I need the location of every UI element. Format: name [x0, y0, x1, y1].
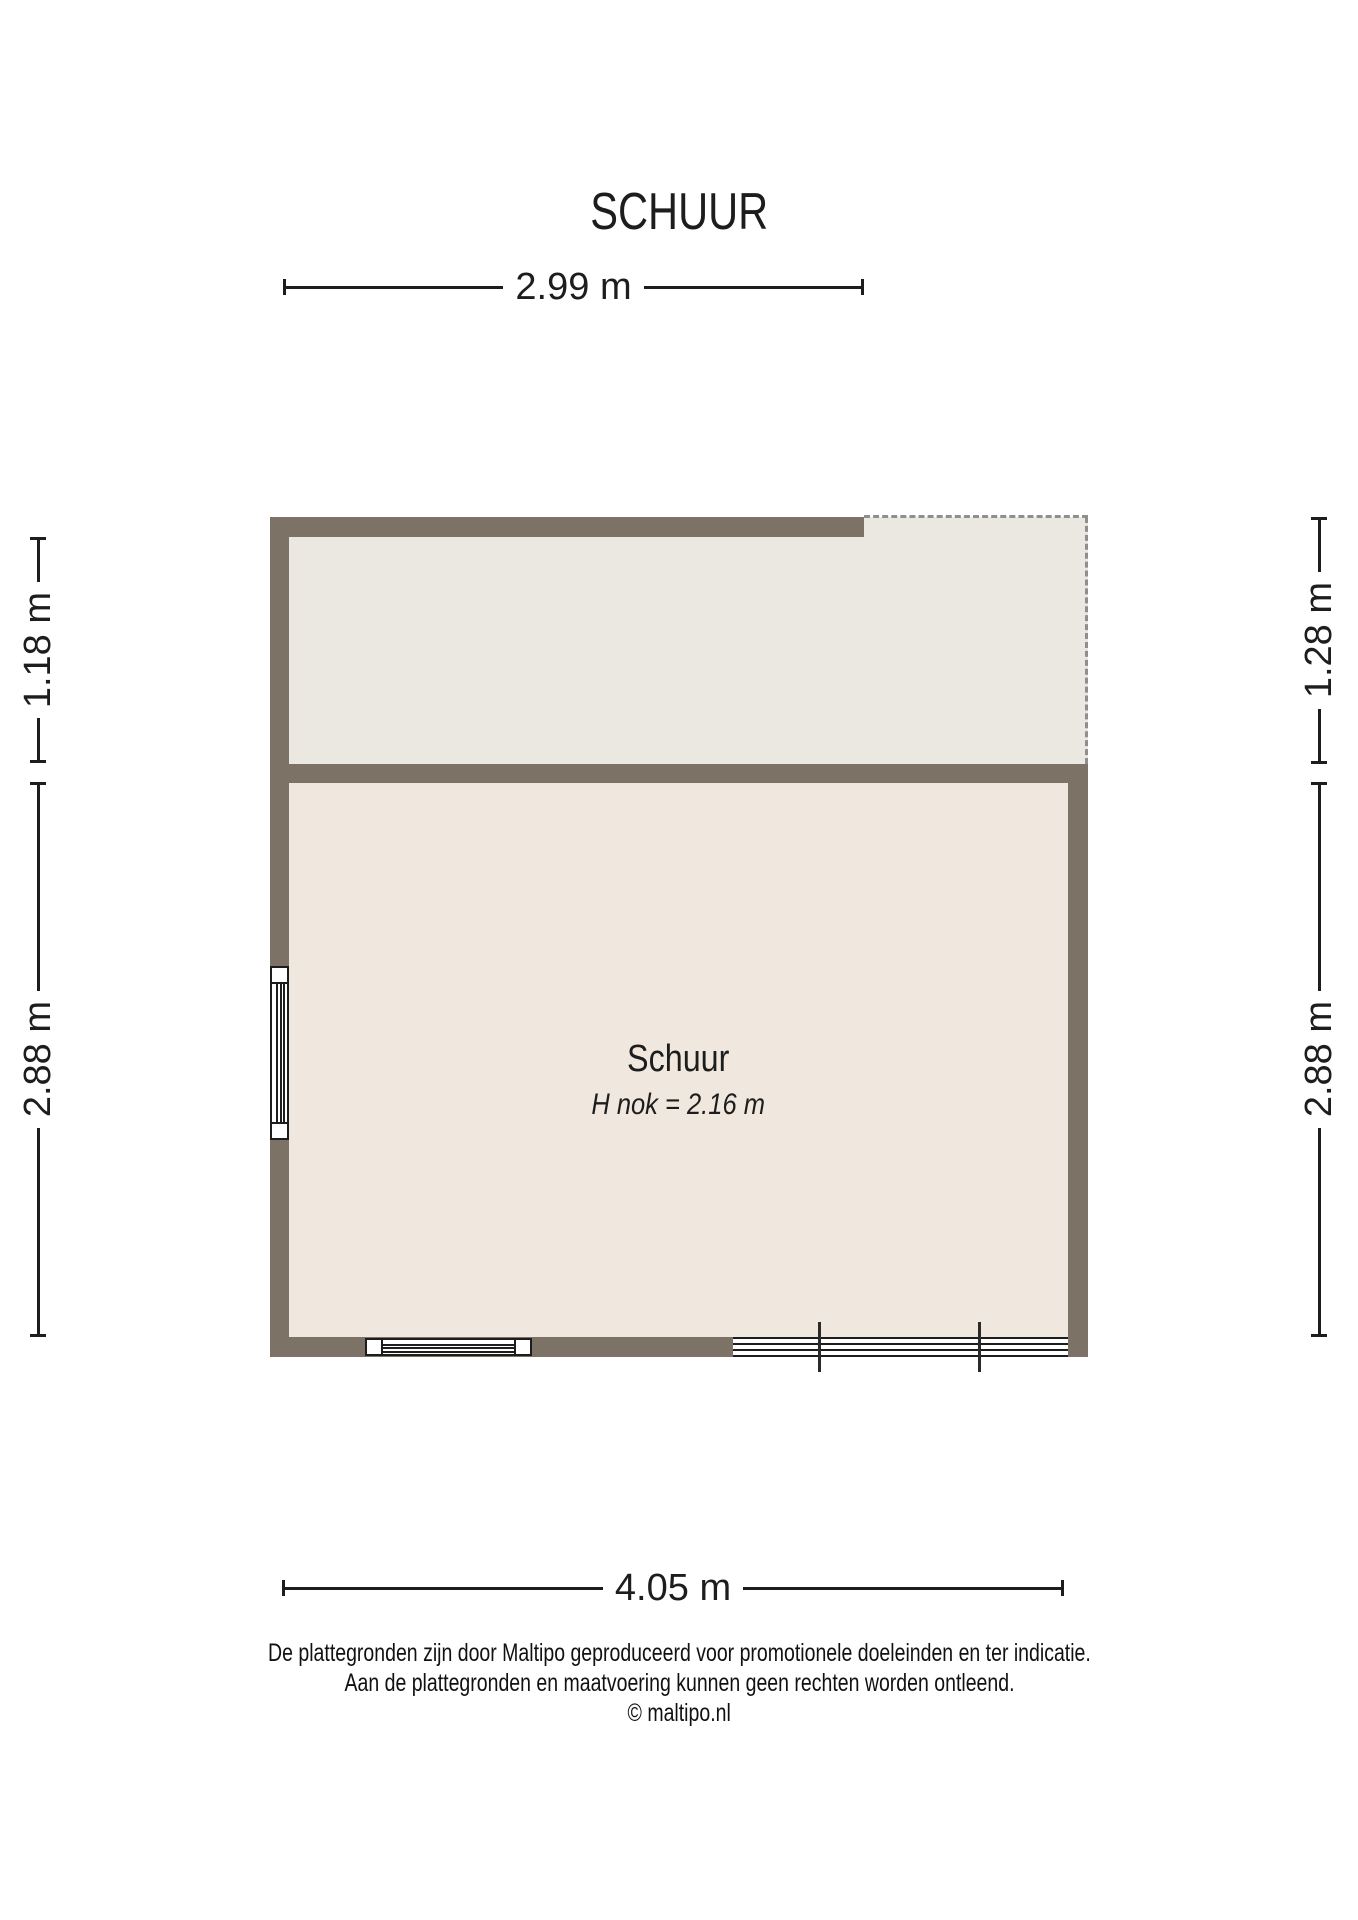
dimension-tick: [1061, 1580, 1064, 1596]
window-sill: [272, 1122, 287, 1138]
dashed-boundary-right: [1085, 517, 1088, 764]
dimension-top: 2.99 m: [283, 264, 864, 310]
window-symbol-left: [270, 966, 289, 1140]
storage-floor-extension: [864, 517, 1088, 537]
dimension-tick: [30, 760, 46, 763]
window-symbol-bottom: [365, 1338, 532, 1356]
dimension-line: [37, 718, 40, 760]
window-sill: [272, 968, 287, 984]
door-symbol: [733, 1337, 1068, 1357]
dimension-tick: [861, 279, 864, 295]
dimension-line: [644, 286, 861, 289]
dimension-right-upper-label: 1.28 m: [1298, 582, 1341, 698]
footer-disclaimer-line1: De plattegronden zijn door Maltipo gepro…: [0, 1638, 1358, 1668]
dimension-left-lower-label: 2.88 m: [17, 1001, 60, 1117]
wall-right: [1068, 764, 1088, 1357]
dimension-line: [1318, 1128, 1321, 1334]
window-glass: [383, 1340, 514, 1354]
dimension-left-lower: 2.88 m: [15, 782, 61, 1337]
dimension-line: [285, 1587, 603, 1590]
dimension-tick: [30, 1334, 46, 1337]
dashed-boundary-top: [864, 515, 1088, 518]
dimension-line: [1318, 709, 1321, 761]
footer-copyright: © maltipo.nl: [0, 1698, 1358, 1728]
dimension-top-label: 2.99 m: [515, 264, 631, 310]
window-sill: [514, 1340, 530, 1354]
room-name: Schuur: [289, 1038, 1068, 1080]
footer-disclaimer-line2: Aan de plattegronden en maatvoering kunn…: [0, 1668, 1358, 1698]
dimension-line: [1318, 520, 1321, 572]
dimension-line: [286, 286, 503, 289]
dimension-line: [37, 1128, 40, 1334]
dimension-right-lower: 2.88 m: [1296, 782, 1342, 1337]
dimension-tick: [1311, 1334, 1327, 1337]
footer: De plattegronden zijn door Maltipo gepro…: [0, 1638, 1358, 1728]
dimension-right-upper: 1.28 m: [1296, 517, 1342, 764]
door-post-tick: [978, 1322, 981, 1372]
storage-floor: [289, 537, 1088, 764]
door-post-tick: [818, 1322, 821, 1372]
dimension-line: [37, 540, 40, 582]
wall-left: [270, 517, 289, 1357]
room-label-group: Schuur H nok = 2.16 m: [289, 1038, 1068, 1122]
dimension-bottom: 4.05 m: [282, 1565, 1064, 1611]
dimension-tick: [1311, 761, 1327, 764]
dimension-left-upper-label: 1.18 m: [17, 592, 60, 708]
dimension-line: [743, 1587, 1061, 1590]
plan-title-text: SCHUUR: [590, 186, 768, 238]
floorplan-page: SCHUUR 2.99 m 4.05 m 1.18 m 2.88 m 1.28: [0, 0, 1358, 1920]
window-glass: [272, 984, 287, 1122]
dimension-bottom-label: 4.05 m: [615, 1565, 731, 1611]
dimension-line: [37, 785, 40, 991]
dimension-left-upper: 1.18 m: [15, 537, 61, 763]
plan-title: SCHUUR: [0, 186, 1358, 238]
dimension-line: [1318, 785, 1321, 991]
dimension-right-lower-label: 2.88 m: [1298, 1001, 1341, 1117]
wall-top: [270, 517, 864, 537]
window-sill: [367, 1340, 383, 1354]
room-height-note: H nok = 2.16 m: [289, 1088, 1068, 1122]
wall-interior: [270, 764, 1088, 783]
